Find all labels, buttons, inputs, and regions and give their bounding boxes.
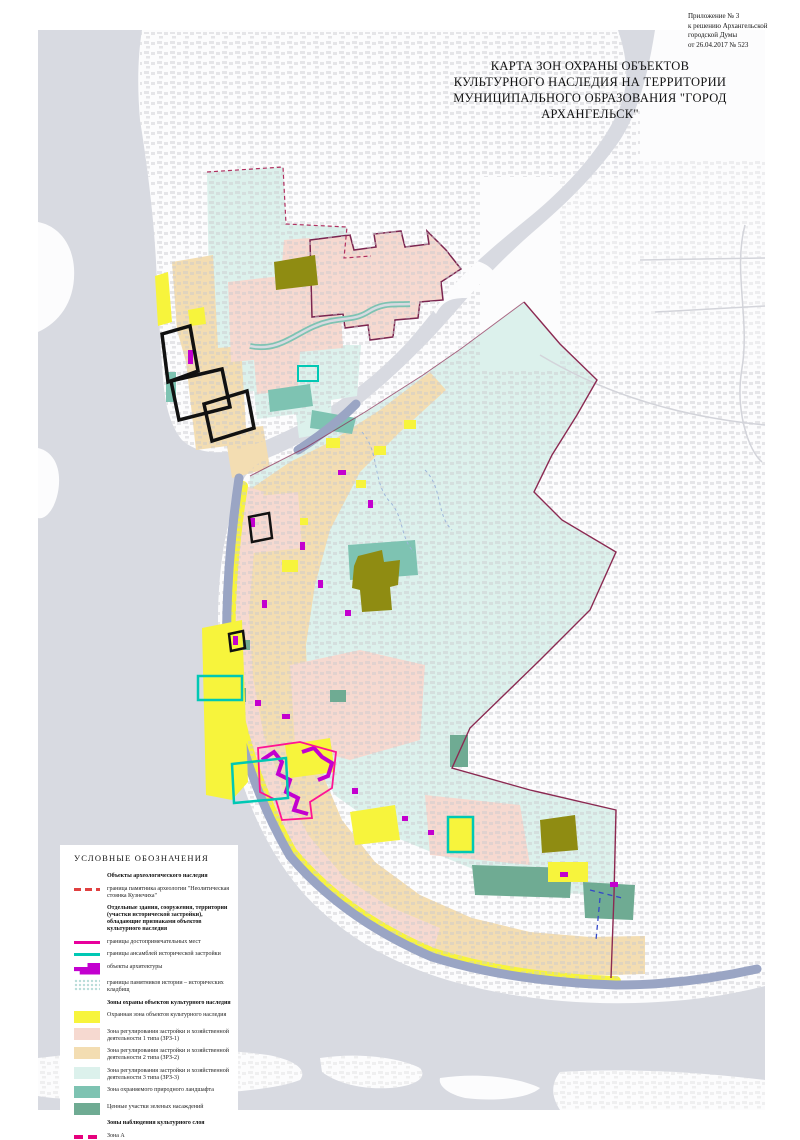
legend-swatch-line-teal <box>74 953 100 956</box>
annotation-line: от 26.04.2017 № 523 <box>688 41 788 51</box>
legend-item-label: границы памятников истории – исторически… <box>107 979 232 994</box>
map-title-line: КУЛЬТУРНОГО НАСЛЕДИЯ НА ТЕРРИТОРИИ <box>410 74 770 90</box>
legend-swatch-fill-teal <box>74 1086 100 1098</box>
legend-item: Зоны наблюдения культурного слоя <box>74 1119 232 1127</box>
legend-items: Объекты археологического наследияграница… <box>74 872 232 1140</box>
legend-item-label: Зона регулирования застройки и хозяйстве… <box>107 1028 232 1043</box>
legend-item-label: Объекты археологического наследия <box>107 872 208 880</box>
legend-item: Зона регулирования застройки и хозяйстве… <box>74 1067 232 1082</box>
legend-item: объекты архитектуры <box>74 963 232 975</box>
legend-swatch-dash-zoneA <box>74 1135 100 1139</box>
legend-swatch-line-magenta <box>74 941 100 944</box>
legend-item-label: Ценные участки зеленых насаждений <box>107 1103 203 1111</box>
legend-item-label: Зоны наблюдения культурного слоя <box>107 1119 205 1127</box>
document-annotation: Приложение № 3 к решению Архангельской г… <box>688 12 788 50</box>
legend-title: УСЛОВНЫЕ ОБОЗНАЧЕНИЯ <box>74 853 232 863</box>
map-document-page: Приложение № 3 к решению Архангельской г… <box>0 0 800 1140</box>
legend-item: граница памятника археологии "Неолитичес… <box>74 885 232 900</box>
legend-item-label: Зона регулирования застройки и хозяйстве… <box>107 1047 232 1062</box>
legend-item-label: Отдельные здания, сооружения, территории… <box>107 904 232 933</box>
legend-swatch-fill-sage <box>74 1103 100 1115</box>
legend-item-label: Зона охраняемого природного ландшафта <box>107 1086 214 1094</box>
legend-item: Зона охраняемого природного ландшафта <box>74 1086 232 1098</box>
annotation-line: городской Думы <box>688 31 788 41</box>
legend-item-label: границы ансамблей исторической застройки <box>107 950 221 958</box>
legend-item: Зона А <box>74 1132 232 1140</box>
legend-swatch-dash-red <box>74 888 100 891</box>
legend-item-label: Зона А <box>107 1132 125 1140</box>
legend-item-label: объекты архитектуры <box>107 963 162 971</box>
legend-item: границы достопримечательных мест <box>74 938 232 946</box>
legend-item: Зона регулирования застройки и хозяйстве… <box>74 1028 232 1043</box>
legend-swatch-fill-pink <box>74 1028 100 1040</box>
legend-item: границы ансамблей исторической застройки <box>74 950 232 958</box>
annotation-line: Приложение № 3 <box>688 12 788 22</box>
map-title: КАРТА ЗОН ОХРАНЫ ОБЪЕКТОВ КУЛЬТУРНОГО НА… <box>410 58 770 122</box>
legend-item: Зоны охраны объектов культурного наследи… <box>74 999 232 1007</box>
legend-item: Охранная зона объектов культурного насле… <box>74 1011 232 1023</box>
legend-item: Ценные участки зеленых насаждений <box>74 1103 232 1115</box>
legend-panel: УСЛОВНЫЕ ОБОЗНАЧЕНИЯ Объекты археологиче… <box>60 845 238 1135</box>
legend-item: границы памятников истории – исторически… <box>74 979 232 994</box>
legend-item-label: Охранная зона объектов культурного насле… <box>107 1011 226 1019</box>
legend-swatch-blob-magenta <box>74 963 100 975</box>
legend-item: Объекты археологического наследия <box>74 872 232 880</box>
map-title-line: КАРТА ЗОН ОХРАНЫ ОБЪЕКТОВ <box>410 58 770 74</box>
legend-item-label: Зона регулирования застройки и хозяйстве… <box>107 1067 232 1082</box>
legend-swatch-fill-cyan <box>74 1067 100 1079</box>
legend-item-label: Зоны охраны объектов культурного наследи… <box>107 999 231 1007</box>
legend-item-label: граница памятника археологии "Неолитичес… <box>107 885 232 900</box>
annotation-line: к решению Архангельской <box>688 22 788 32</box>
legend-swatch-fill-tan <box>74 1047 100 1059</box>
map-title-line: МУНИЦИПАЛЬНОГО ОБРАЗОВАНИЯ "ГОРОД АРХАНГ… <box>410 90 770 122</box>
legend-swatch-fill-yellow <box>74 1011 100 1023</box>
legend-item-label: границы достопримечательных мест <box>107 938 201 946</box>
legend-item: Зона регулирования застройки и хозяйстве… <box>74 1047 232 1062</box>
legend-swatch-dots <box>74 979 100 991</box>
legend-item: Отдельные здания, сооружения, территории… <box>74 904 232 933</box>
